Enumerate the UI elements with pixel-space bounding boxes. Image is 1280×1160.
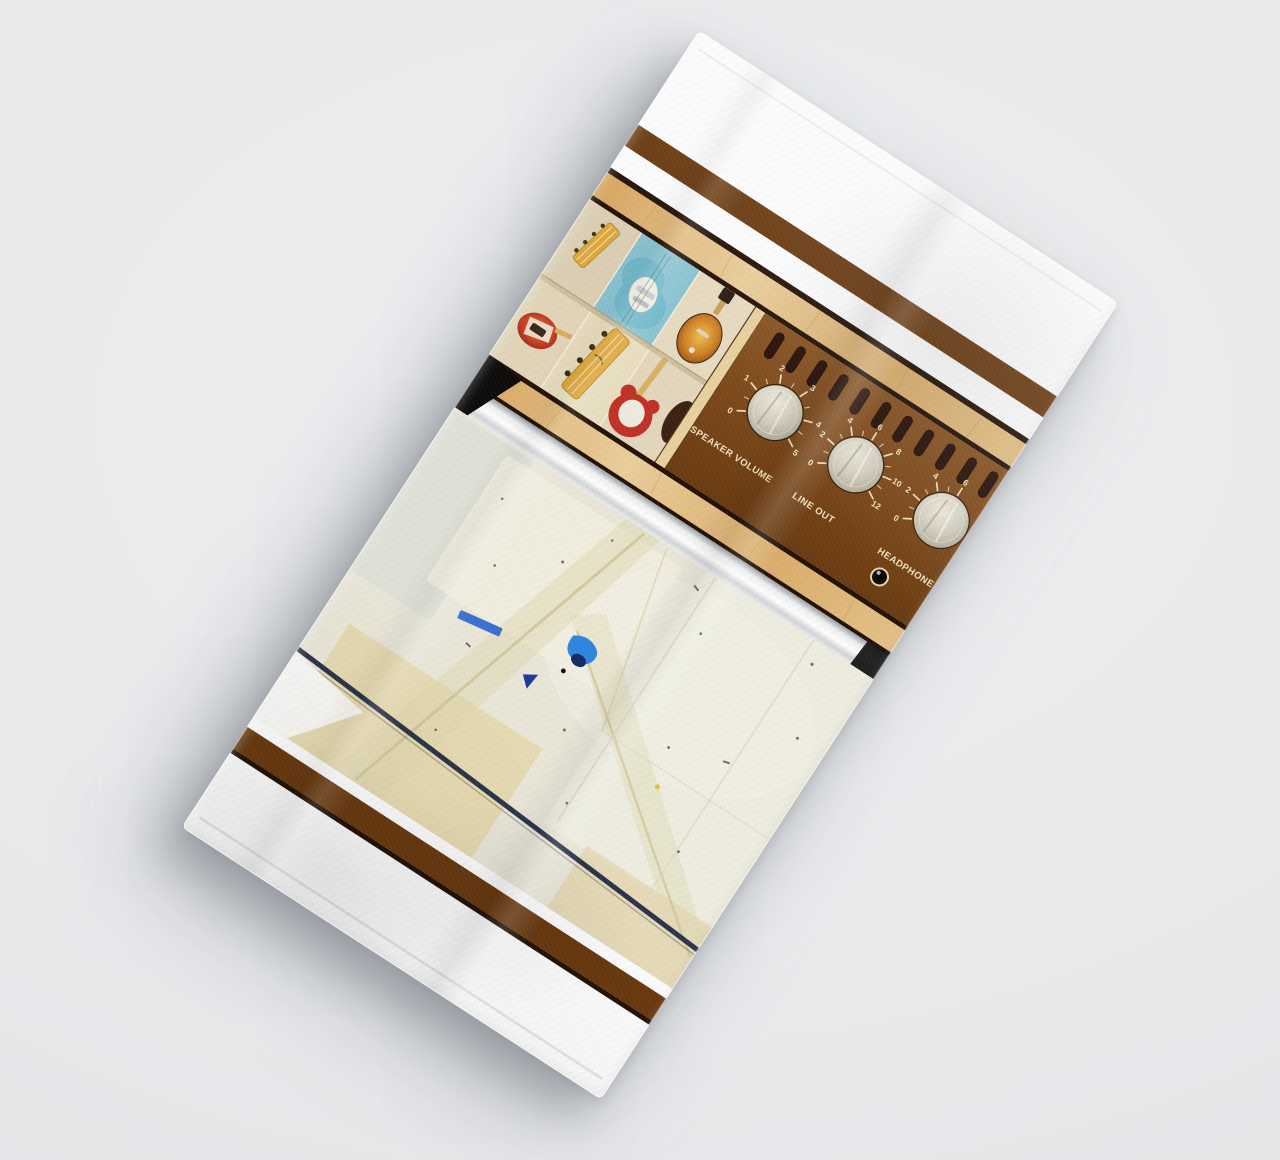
mockup-scene: 012345 SPEAKER VOLUME 024681012 LINE OUT [0, 0, 1280, 1160]
